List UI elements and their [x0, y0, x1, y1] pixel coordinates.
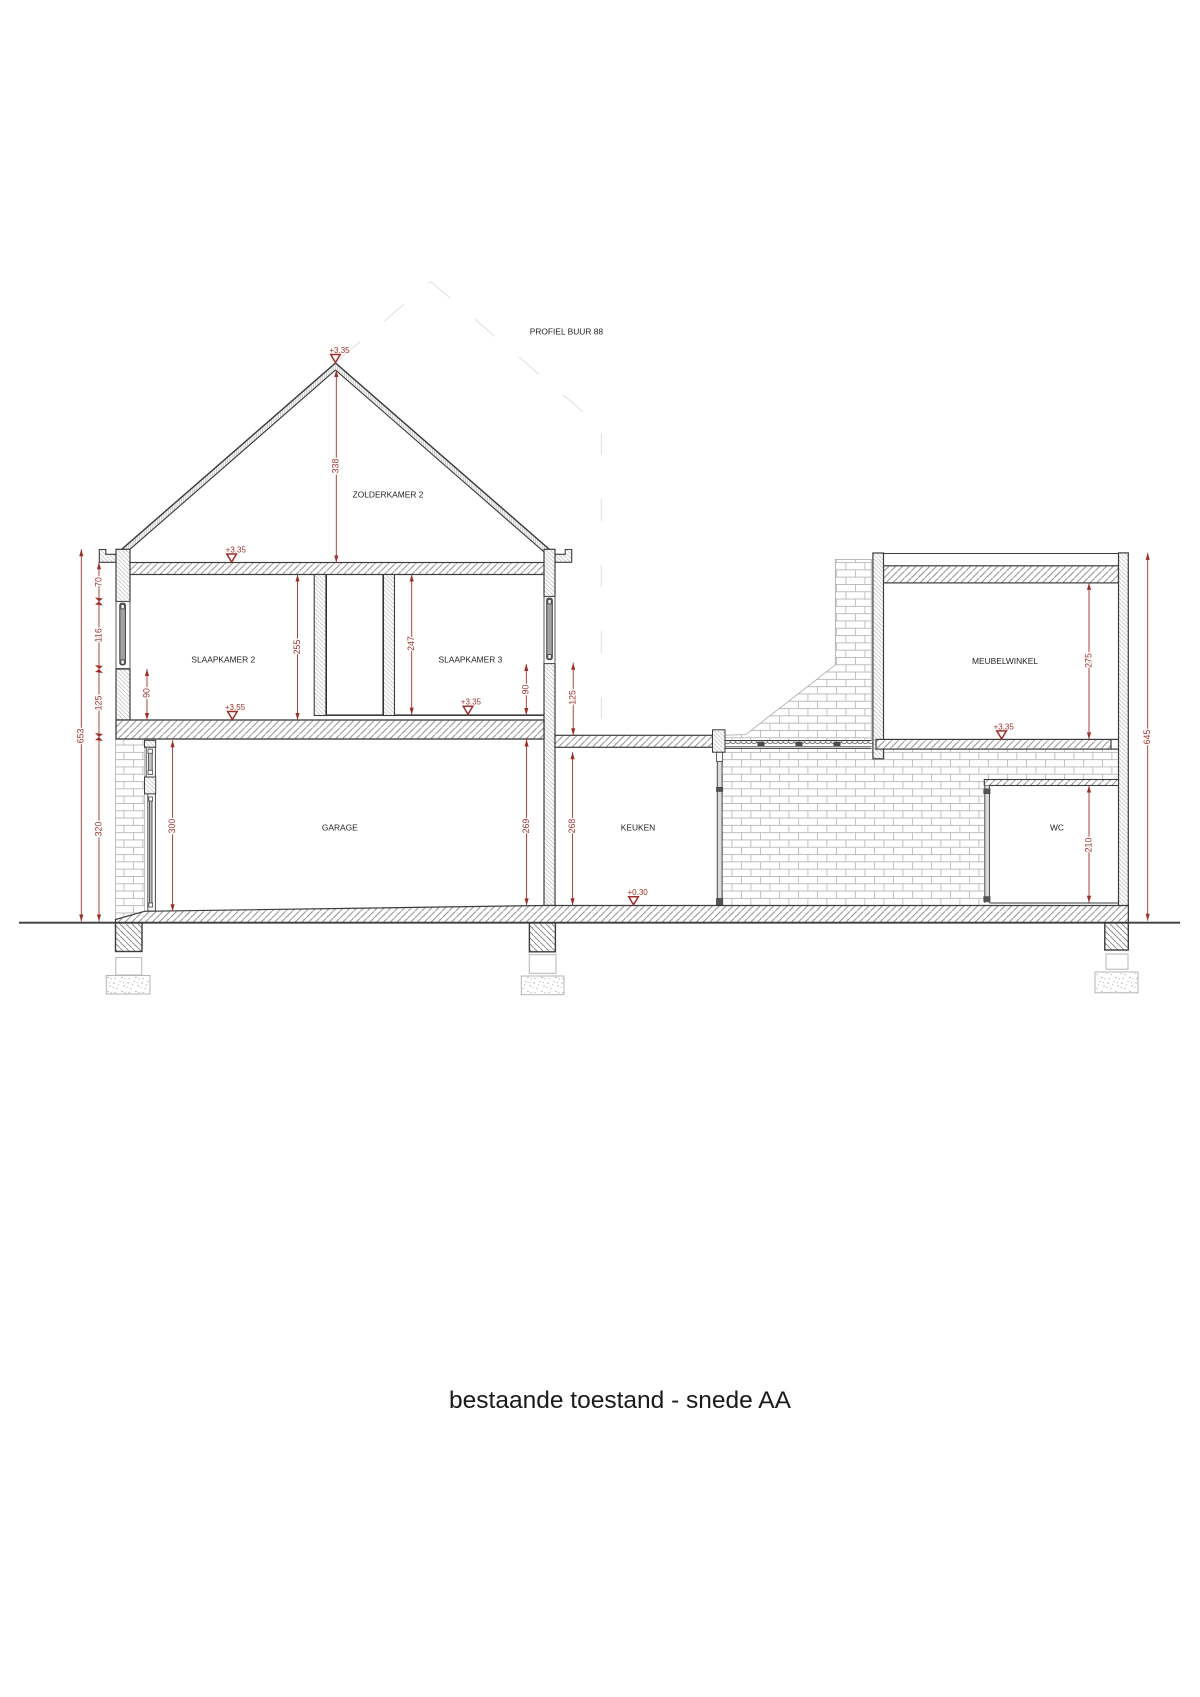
svg-text:338: 338 [331, 459, 341, 474]
svg-text:+3.35: +3.35 [329, 346, 350, 355]
svg-text:268: 268 [567, 819, 577, 834]
svg-text:KEUKEN: KEUKEN [621, 823, 655, 833]
svg-text:116: 116 [93, 628, 103, 642]
svg-text:70: 70 [93, 577, 103, 587]
svg-text:255: 255 [292, 640, 302, 655]
svg-text:90: 90 [521, 685, 531, 695]
svg-text:90: 90 [141, 688, 151, 698]
svg-text:275: 275 [1083, 653, 1093, 668]
svg-text:320: 320 [93, 822, 103, 837]
svg-text:300: 300 [167, 819, 177, 834]
svg-text:645: 645 [1142, 730, 1152, 745]
svg-text:+3.35: +3.35 [226, 545, 247, 554]
svg-text:PROFIEL BUUR 88: PROFIEL BUUR 88 [530, 327, 604, 337]
svg-text:bestaande toestand - snede AA: bestaande toestand - snede AA [449, 1387, 792, 1414]
svg-text:MEUBELWINKEL: MEUBELWINKEL [972, 656, 1038, 666]
svg-text:ZOLDERKAMER 2: ZOLDERKAMER 2 [353, 490, 424, 500]
svg-text:247: 247 [406, 636, 416, 651]
svg-text:SLAAPKAMER 2: SLAAPKAMER 2 [191, 655, 255, 665]
svg-text:WC: WC [1050, 823, 1064, 833]
svg-text:125: 125 [568, 690, 578, 705]
svg-text:+0.30: +0.30 [627, 888, 648, 897]
svg-text:+3.35: +3.35 [994, 722, 1015, 731]
svg-text:+3.35: +3.35 [461, 698, 482, 707]
svg-text:GARAGE: GARAGE [322, 823, 358, 833]
svg-text:+3.55: +3.55 [225, 703, 246, 712]
svg-text:210: 210 [1083, 838, 1093, 853]
svg-text:SLAAPKAMER 3: SLAAPKAMER 3 [439, 655, 503, 665]
svg-text:269: 269 [521, 819, 531, 834]
svg-text:653: 653 [76, 729, 86, 744]
svg-text:125: 125 [93, 696, 103, 711]
